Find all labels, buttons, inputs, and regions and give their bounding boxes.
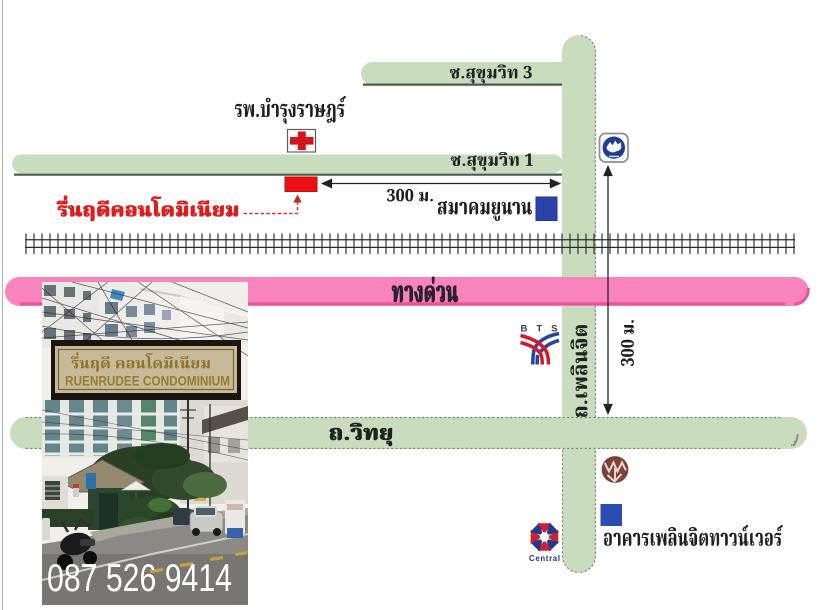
svg-text:BTS: BTS — [521, 324, 558, 335]
svg-text:087 526 9414: 087 526 9414 — [47, 557, 232, 600]
svg-text:RUENRUDEE CONDOMINIUM: RUENRUDEE CONDOMINIUM — [65, 374, 230, 389]
svg-text:Central: Central — [529, 554, 560, 563]
